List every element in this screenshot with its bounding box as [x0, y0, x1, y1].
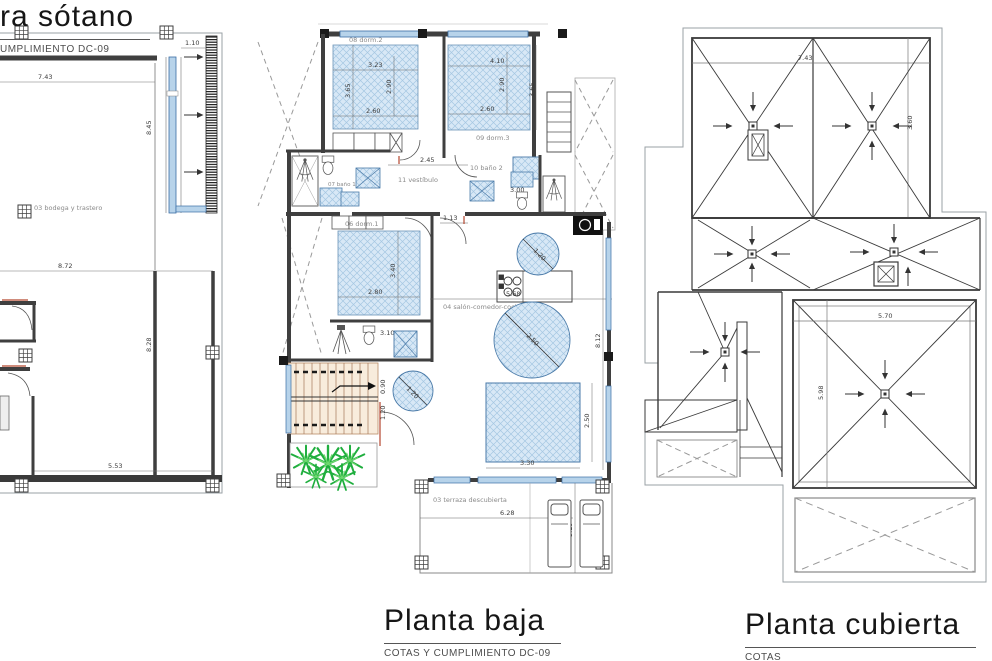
- hatched-wall: [206, 36, 217, 213]
- roof-drain-center: [748, 250, 756, 258]
- column-marker: [415, 480, 428, 493]
- terrace-dashed-bottom: [795, 498, 975, 572]
- room-label-dorm1: 06 dorm.1: [345, 220, 379, 228]
- plan-subtitle-cubierta: COTAS: [745, 652, 976, 661]
- fixture: [320, 188, 342, 206]
- closet-dorm2: [333, 133, 402, 152]
- roof-drain-center: [721, 348, 729, 356]
- column-black: [558, 29, 567, 38]
- column-marker: [18, 205, 31, 218]
- window-glazing: [286, 365, 291, 433]
- shower-bath2: [543, 176, 565, 212]
- roof-drain-center: [881, 390, 889, 398]
- plan-cubierta: 7.43 3.60: [645, 28, 986, 582]
- fixture: [511, 172, 533, 187]
- slope-arrow: [184, 112, 204, 118]
- plan-title-sotano: ra sótano: [0, 0, 150, 40]
- dim-height: 8.28: [145, 338, 153, 352]
- dim-sq-h: 5.98: [817, 386, 825, 400]
- column-marker: [206, 479, 219, 492]
- wardrobe: [547, 92, 571, 152]
- dim-d2-h: 3.65: [344, 84, 352, 98]
- plan-title-cubierta: Planta cubierta: [745, 608, 976, 648]
- dim-stair-a: 0.90: [379, 380, 387, 394]
- table-circle-big: 2.50: [494, 302, 570, 378]
- pool: [486, 383, 580, 462]
- dim-d2-h2: 2.90: [385, 80, 393, 94]
- sun-lounger: [548, 500, 571, 567]
- window-glazing: [606, 386, 611, 462]
- terrace: 03 terraza descubierta 6.28 3.19: [415, 480, 612, 573]
- terrace-dashed-left: [657, 440, 737, 477]
- porch-dashed-right: [575, 78, 615, 230]
- dim-right-v: 8.45: [145, 121, 153, 135]
- roof-drain-center: [868, 122, 876, 130]
- dim-d3-w: 4.10: [490, 57, 504, 65]
- dim-roof-right: 3.60: [906, 116, 914, 130]
- column-black: [604, 352, 613, 361]
- window-glazing: [169, 57, 176, 213]
- table-circle-stairs: 1.20: [393, 371, 433, 411]
- sun-lounger: [580, 500, 603, 567]
- chimney-square: [874, 262, 898, 286]
- dim-pool-h: 2.50: [583, 414, 591, 428]
- shower-tray: [394, 331, 417, 357]
- dim-top: 7.43: [38, 73, 52, 81]
- slope-arrow: [184, 169, 204, 175]
- stairs: 0.90 1.20: [288, 363, 414, 446]
- door-arc: [8, 373, 30, 396]
- drawing-canvas: 1.10 7.43 8.45 03 bodega y trastero 8.72…: [0, 0, 992, 661]
- boiler: [573, 215, 603, 235]
- room-label-bano2: 10 baño 2: [470, 164, 503, 172]
- washbasin-icon: [470, 181, 494, 201]
- dim-hall: 1.13: [443, 214, 457, 222]
- plan-sotano: 1.10 7.43 8.45 03 bodega y trastero 8.72…: [0, 26, 222, 493]
- column-marker: [206, 346, 219, 359]
- fixture: [341, 192, 359, 206]
- room-dorm1-floor: [338, 231, 420, 315]
- dim-d1-w: 2.80: [368, 288, 382, 296]
- roof-drain-center: [749, 122, 757, 130]
- dim-d3-h2: 3.65: [528, 83, 536, 97]
- room-label-dorm3: 09 dorm.3: [476, 134, 510, 142]
- planter: [290, 443, 377, 490]
- dim-sq-w: 5.70: [878, 312, 892, 320]
- room-label-terraza: 03 terraza descubierta: [433, 496, 507, 504]
- dim-mid: 8.72: [58, 262, 72, 270]
- room-label-bodega: 03 bodega y trastero: [34, 204, 102, 212]
- column-marker: [160, 26, 173, 39]
- dim-pool-w: 3.30: [520, 459, 534, 467]
- window-glazing: [478, 477, 556, 483]
- window-glazing: [434, 477, 470, 483]
- column-marker: [415, 556, 428, 569]
- dim-salon-h: 8.12: [594, 334, 602, 348]
- dim-salon-w: 5.68: [506, 290, 520, 298]
- dim-d2-w: 3.23: [368, 61, 382, 69]
- dim-terr-w: 6.28: [500, 509, 514, 517]
- slope-arrow: [184, 54, 204, 60]
- toilet-icon: [516, 192, 527, 209]
- column-black: [279, 356, 288, 365]
- dim-bottom: 5.53: [108, 462, 122, 470]
- plan-baja: 08 dorm.2 3.23 2.60 3.65 2.90 09 dorm.3 …: [258, 24, 615, 573]
- dim-roof-top: 7.43: [798, 54, 812, 62]
- toilet-icon: [363, 326, 375, 344]
- room-label-dorm2: 08 dorm.2: [349, 36, 383, 44]
- room-label-vestibulo: 11 vestíbulo: [398, 176, 438, 184]
- column-marker: [596, 480, 609, 493]
- toilet-icon: [322, 156, 334, 174]
- roof-drain-center: [890, 248, 898, 256]
- dim-d1-h: 3.40: [389, 264, 397, 278]
- column-marker: [277, 474, 290, 487]
- dim-vest: 2.45: [420, 156, 434, 164]
- dim-window: 1.10: [185, 39, 199, 47]
- dim-bano3: 3.10: [380, 329, 394, 337]
- dim-d3-h: 2.90: [498, 78, 506, 92]
- shower-bath1: [292, 156, 318, 206]
- column-black: [418, 29, 427, 38]
- chimney: [748, 130, 768, 160]
- title-block-baja: Planta baja COTAS Y CUMPLIMIENTO DC-09: [384, 604, 561, 659]
- plan-subtitle-sotano: UMPLIMIENTO DC-09: [0, 44, 150, 55]
- title-block-cubierta: Planta cubierta COTAS: [745, 608, 976, 661]
- door-arc: [400, 140, 420, 160]
- column-marker: [15, 479, 28, 492]
- blueprint-sheet: 1.10 7.43 8.45 03 bodega y trastero 8.72…: [0, 0, 992, 661]
- table-circle-small: 1.20: [517, 233, 559, 275]
- dim-d3-w2: 2.60: [480, 105, 494, 113]
- shower-bath3: [333, 325, 350, 354]
- dim-d2-w2: 2.60: [366, 107, 380, 115]
- plan-title-baja: Planta baja: [384, 604, 561, 644]
- door-arc: [12, 306, 32, 330]
- title-block-sotano: ra sótano UMPLIMIENTO DC-09: [0, 0, 150, 55]
- washbasin-icon: [356, 168, 380, 188]
- window-glazing: [606, 238, 611, 330]
- window-glazing: [448, 31, 528, 37]
- room-dorm3-floor: [448, 45, 530, 130]
- column-marker: [19, 349, 32, 362]
- plan-subtitle-baja: COTAS Y CUMPLIMIENTO DC-09: [384, 648, 561, 659]
- room-label-bano1: 07 baño 1: [328, 182, 356, 188]
